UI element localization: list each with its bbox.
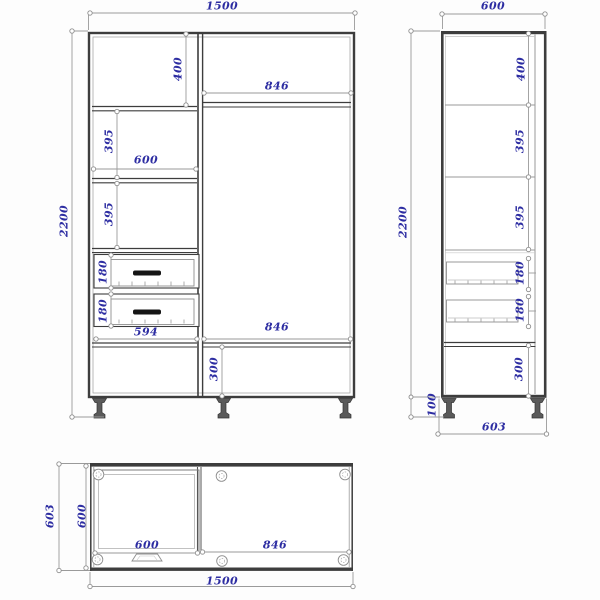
front-drawer-1 bbox=[94, 255, 199, 289]
front-view-body bbox=[89, 33, 354, 397]
dim-side-drawer1-height: 180 bbox=[515, 261, 526, 285]
dim-front-door-top-width: 846 bbox=[265, 81, 289, 92]
dim-front-shelf-section-height: 395 bbox=[104, 129, 115, 153]
dim-side-drawer2-height: 180 bbox=[515, 298, 526, 322]
dim-side-depth-with-doors: 603 bbox=[482, 422, 506, 433]
dim-front-drawer1-height: 180 bbox=[98, 260, 109, 284]
dim-front-drawer2-height: 180 bbox=[98, 299, 109, 323]
dim-front-top-section-height: 400 bbox=[173, 57, 184, 81]
dim-front-overall-width: 1500 bbox=[206, 1, 238, 12]
front-drawer-2 bbox=[94, 294, 199, 327]
dim-front-overall-height: 2200 bbox=[59, 205, 70, 237]
dim-side-shelf-section-height: 395 bbox=[515, 129, 526, 153]
blueprint-page: 1500 2200 400 846 395 600 395 180 180 59… bbox=[0, 0, 600, 600]
dim-side-bottom-section-height: 300 bbox=[514, 357, 525, 381]
dim-side-shelf-section2-height: 395 bbox=[515, 205, 526, 229]
drawing-canvas bbox=[0, 0, 600, 600]
side-feet bbox=[442, 399, 545, 419]
dim-top-body-depth: 600 bbox=[77, 504, 88, 528]
dim-side-overall-depth: 600 bbox=[481, 1, 505, 12]
dim-front-left-unit-width: 600 bbox=[134, 155, 158, 166]
drawer-handle bbox=[133, 310, 161, 315]
dim-top-inner-unit-width: 600 bbox=[135, 540, 159, 551]
dim-side-top-section-height: 400 bbox=[516, 57, 527, 81]
side-view-body bbox=[441, 31, 547, 398]
drawer-handle bbox=[133, 271, 161, 276]
dim-front-door-bottom-width: 846 bbox=[265, 322, 289, 333]
dim-front-shelf-section2-height: 395 bbox=[104, 202, 115, 226]
dim-side-overall-height: 2200 bbox=[398, 206, 409, 238]
dim-side-leg-height: 100 bbox=[427, 393, 438, 417]
dim-front-bottom-section-height: 300 bbox=[209, 357, 220, 381]
dim-top-door-width: 846 bbox=[263, 540, 287, 551]
dim-top-overall-width: 1500 bbox=[206, 576, 238, 587]
dim-front-drawer-front-width: 594 bbox=[134, 327, 158, 338]
dim-top-depth-with-doors: 603 bbox=[45, 504, 56, 528]
front-feet bbox=[93, 399, 353, 419]
